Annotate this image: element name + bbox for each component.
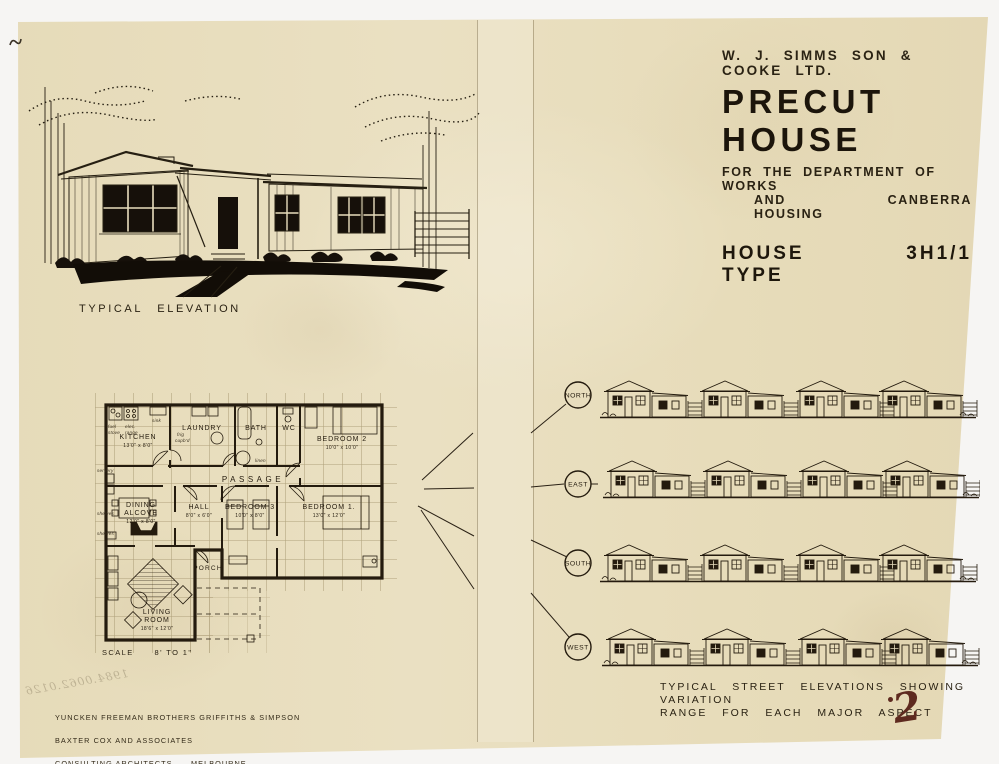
street-elevation-row-west <box>598 625 980 671</box>
plan-scale-note: SCALE 8' TO 1" <box>102 648 192 657</box>
room-dims-bedroom3: 10'0" x 8'0" <box>235 513 264 519</box>
credits-line-3: CONSULTING ARCHITECTS MELBOURNE <box>55 758 300 764</box>
annot-shelves-b: shelves <box>97 531 114 536</box>
room-label-kitchen: KITCHEN <box>119 434 156 441</box>
perspective-caption: TYPICAL ELEVATION <box>79 303 241 315</box>
room-label-dining-1: DINING <box>126 502 156 509</box>
room-label-bedroom1: BEDROOM 1. <box>303 504 356 511</box>
house-perspective-drawing <box>25 35 485 300</box>
room-label-laundry: LAUNDRY <box>182 425 222 432</box>
front-door <box>218 197 238 249</box>
client-line-2b: CANBERRA <box>888 193 972 221</box>
street-elevation-row-south <box>598 541 980 587</box>
house-type-label: HOUSE TYPE <box>722 243 872 287</box>
street-caption-line-2: RANGE FOR EACH MAJOR ASPECT <box>660 707 999 720</box>
room-label-bedroom2: BEDROOM 2 <box>317 436 367 443</box>
room-dims-dining: 12'0" x 8'0" <box>126 519 155 525</box>
fold-band <box>477 20 533 742</box>
sheet-number-dot <box>888 697 893 702</box>
annot-frig-1: frig <box>177 432 184 437</box>
client-line-1: FOR THE DEPARTMENT OF WORKS <box>722 165 972 193</box>
architect-credits: YUNCKEN FREEMAN BROTHERS GRIFFITHS & SIM… <box>55 700 300 764</box>
room-dims-hall: 8'0" x 6'0" <box>186 513 212 519</box>
room-label-wc: WC <box>282 425 295 432</box>
title-block: W. J. SIMMS SON & COOKE LTD. PRECUT HOUS… <box>722 48 972 287</box>
house-type: HOUSE TYPE 3H1/1 <box>722 243 972 287</box>
room-dims-living: 18'6" x 12'0" <box>141 626 174 632</box>
annot-linen: linen <box>255 458 266 463</box>
annot-fuel-2: stove <box>108 430 120 435</box>
annot-fuel-1: fuel <box>108 424 117 429</box>
annot-shelves-a: shelves <box>97 511 114 516</box>
house-type-value: 3H1/1 <box>906 243 972 287</box>
annot-frig-2: cupb'd <box>175 438 190 443</box>
street-caption-line-1: TYPICAL STREET ELEVATIONS SHOWING VARIAT… <box>660 681 999 707</box>
room-label-living-2: ROOM <box>144 617 169 624</box>
stair-rail <box>177 176 205 247</box>
room-label-bath: BATH <box>245 425 267 432</box>
client-line-2a: AND HOUSING <box>754 193 846 221</box>
street-elevations-caption: TYPICAL STREET ELEVATIONS SHOWING VARIAT… <box>660 681 999 720</box>
pencil-mark <box>7 34 23 50</box>
company-name: W. J. SIMMS SON & COOKE LTD. <box>722 48 972 78</box>
annot-elec-2: range <box>125 430 138 435</box>
client-line-2: AND HOUSING CANBERRA <box>722 193 972 221</box>
annot-servery: servery <box>97 468 114 473</box>
room-label-dining-2: ALCOVE <box>124 510 158 517</box>
tree-foliage <box>29 86 479 141</box>
tree-trunks <box>45 87 436 270</box>
left-wing <box>58 152 193 264</box>
street-elevation-row-north <box>598 377 980 423</box>
room-dims-bedroom1: 13'0" x 12'0" <box>313 513 346 519</box>
room-dims-kitchen: 13'0" x 8'0" <box>123 443 152 449</box>
entry-porch <box>175 168 271 264</box>
room-dims-bedroom2: 10'0" x 10'0" <box>326 445 359 451</box>
right-wing <box>263 174 427 251</box>
room-label-bedroom3: BEDROOM 3 <box>225 504 275 511</box>
room-label-hall: HALL <box>188 504 209 511</box>
scanned-sheet-page: TYPICAL ELEVATION W. J. SIMMS SON & COOK… <box>0 0 999 764</box>
floor-plan-drawing: KITCHEN 13'0" x 8'0" LAUNDRY BATH WC BED… <box>95 388 405 673</box>
credits-line-2: BAXTER COX AND ASSOCIATES <box>55 735 300 747</box>
drawing-title: PRECUT HOUSE <box>722 83 972 159</box>
credits-line-1: YUNCKEN FREEMAN BROTHERS GRIFFITHS & SIM… <box>55 712 300 724</box>
annot-elec-1: elec. <box>125 424 136 429</box>
fold-seam-right <box>533 20 534 742</box>
annot-sink: sink <box>152 418 161 423</box>
room-label-living-1: LIVING <box>143 609 171 616</box>
room-label-passage: PASSAGE <box>222 475 284 484</box>
street-elevation-row-east <box>598 457 980 503</box>
room-label-porch: PORCH <box>193 565 222 572</box>
cast-shadow <box>73 260 448 297</box>
